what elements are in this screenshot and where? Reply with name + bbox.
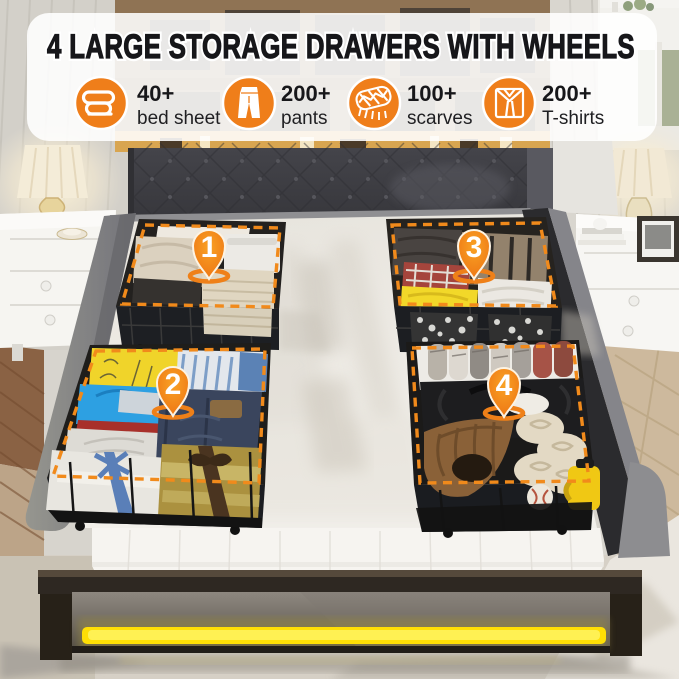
svg-text:4: 4 (496, 369, 513, 402)
svg-text:T-shirts: T-shirts (542, 108, 604, 129)
svg-text:scarves: scarves (407, 108, 472, 129)
svg-text:200+: 200+ (542, 81, 592, 106)
svg-text:1: 1 (201, 231, 218, 264)
svg-text:bed sheet: bed sheet (137, 108, 221, 129)
svg-text:200+: 200+ (281, 81, 331, 106)
svg-text:pants: pants (281, 108, 327, 129)
svg-text:4 LARGE STORAGE DRAWERS WITH W: 4 LARGE STORAGE DRAWERS WITH WHEELS (47, 28, 635, 66)
svg-text:3: 3 (466, 231, 483, 264)
svg-text:2: 2 (165, 368, 182, 401)
svg-text:40+: 40+ (137, 81, 174, 106)
svg-text:100+: 100+ (407, 81, 457, 106)
